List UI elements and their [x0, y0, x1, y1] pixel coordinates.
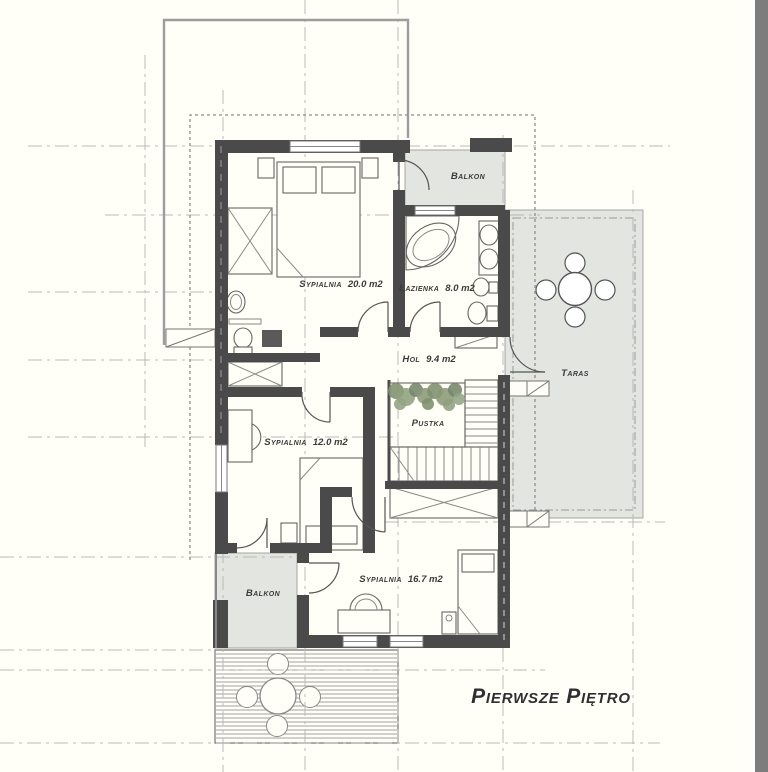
planter-greenery — [388, 383, 465, 411]
wardrobe-master — [228, 208, 272, 274]
room-label-sypialnia-20: Sypialnia20.0 m2 — [299, 279, 383, 290]
room-label-balkon-bottom: Balkon — [246, 588, 281, 599]
room-label-hol: Hol9.4 m2 — [402, 354, 456, 365]
wardrobe-bedroom-16 — [390, 487, 498, 518]
room-label-balkon-top: Balkon — [451, 171, 486, 182]
floor-plan-page: Balkon Sypialnia20.0 m2 Łazienka8.0 m2 H… — [0, 0, 768, 772]
bidet — [473, 278, 498, 296]
toilet — [468, 302, 498, 324]
room-label-pustka: Pustka — [412, 418, 445, 429]
bathtub-corner — [398, 214, 464, 276]
chimney-block — [166, 329, 215, 347]
room-label-lazienka: Łazienka8.0 m2 — [398, 283, 475, 294]
wardrobe-corridor — [228, 362, 282, 386]
room-label-taras: Taras — [561, 368, 589, 379]
desk-bedroom-16 — [338, 594, 390, 633]
plan-title: Pierwsze Piętro — [471, 685, 631, 708]
bed-master — [258, 158, 378, 277]
deck-pergola — [215, 650, 398, 743]
room-label-sypialnia-16: Sypialnia16.7 m2 — [359, 574, 443, 585]
page-edge-strip — [755, 0, 768, 772]
room-label-sypialnia-12: Sypialnia12.0 m2 — [264, 437, 348, 448]
bathroom-sinks — [479, 221, 499, 275]
desk-bedroom-12 — [228, 410, 261, 462]
floor-plan-drawing: Balkon Sypialnia20.0 m2 Łazienka8.0 m2 H… — [0, 0, 768, 772]
bed-bedroom-16 — [442, 550, 498, 634]
wc-nook-fixtures — [227, 291, 282, 355]
